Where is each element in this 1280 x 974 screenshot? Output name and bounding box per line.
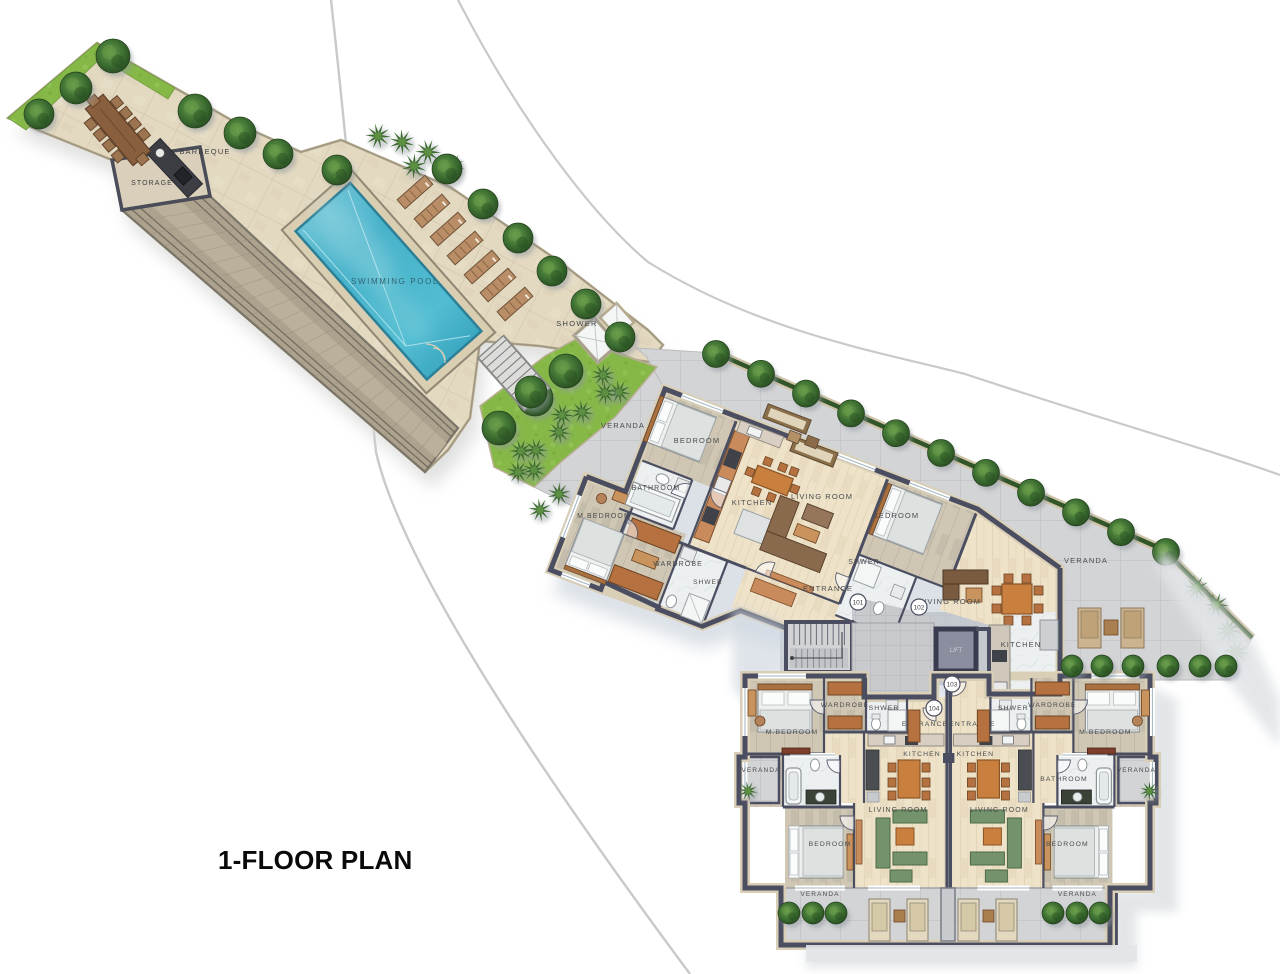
svg-text:WARDROBE: WARDROBE [1028,702,1077,709]
svg-text:LIVING ROOM: LIVING ROOM [919,597,981,606]
svg-text:STORAGE: STORAGE [131,180,173,187]
svg-text:BARBEQUE: BARBEQUE [179,147,230,156]
svg-text:SHWER: SHWER [998,705,1029,712]
svg-text:1-FLOOR PLAN: 1-FLOOR PLAN [218,845,413,875]
svg-text:ENTRANCE: ENTRANCE [803,584,853,593]
svg-text:M.BEDROOM: M.BEDROOM [1079,729,1132,736]
svg-text:104: 104 [929,705,940,712]
svg-text:BEDROOM: BEDROOM [809,841,852,848]
svg-text:BEDROOM: BEDROOM [873,511,919,520]
svg-text:KITCHEN: KITCHEN [732,498,773,507]
svg-text:KITCHEN: KITCHEN [957,751,995,758]
svg-text:LIVING ROOM: LIVING ROOM [869,807,928,814]
svg-text:BATHROOM: BATHROOM [1040,776,1088,783]
svg-text:LIVING ROOM: LIVING ROOM [970,807,1029,814]
svg-text:SHWER: SHWER [869,705,900,712]
svg-text:BEDROOM: BEDROOM [674,436,720,445]
svg-text:BEDROOM: BEDROOM [1046,841,1089,848]
svg-text:SHWER: SHWER [848,559,880,566]
svg-text:BATHROOM: BATHROOM [632,485,681,492]
svg-text:103: 103 [947,681,958,688]
svg-text:101: 101 [853,599,864,606]
svg-text:LIVING ROOM: LIVING ROOM [791,492,853,501]
svg-text:M.BEDROOM: M.BEDROOM [766,729,819,736]
svg-text:M.BEDROOM: M.BEDROOM [577,513,631,520]
svg-text:VERANDA: VERANDA [1117,767,1156,774]
svg-text:VERANDA: VERANDA [800,891,839,898]
svg-text:VERANDA: VERANDA [601,421,645,430]
svg-text:LIFT: LIFT [950,648,964,654]
svg-text:WARDROBE: WARDROBE [821,702,870,709]
svg-text:VERANDA: VERANDA [1064,556,1108,565]
svg-text:KITCHEN: KITCHEN [1001,640,1042,649]
svg-text:102: 102 [914,604,925,611]
svg-text:SWIMMING POOL: SWIMMING POOL [351,277,439,286]
svg-text:VERANDA: VERANDA [1058,891,1097,898]
svg-text:VERANDA: VERANDA [741,767,780,774]
svg-text:SHWER: SHWER [693,579,723,586]
svg-text:WARDROBE: WARDROBE [653,561,703,568]
svg-text:KITCHEN: KITCHEN [903,751,941,758]
